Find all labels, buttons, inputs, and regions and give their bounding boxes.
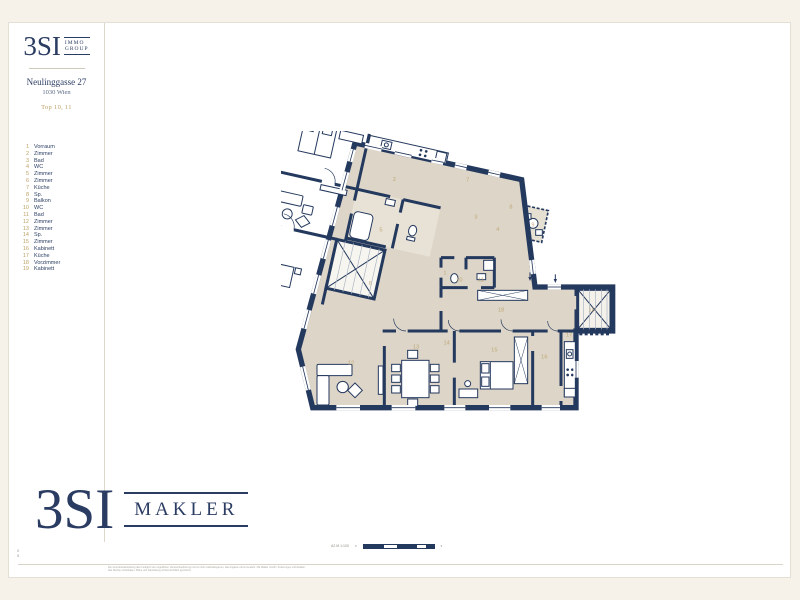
room-number: 2 — [393, 177, 396, 183]
room-number: 11 — [478, 278, 484, 284]
makler-logo: 3SI MAKLER — [35, 481, 248, 538]
unit-label: Top 10, 11 — [9, 104, 104, 111]
legend-item: 17Küche — [20, 253, 102, 260]
room-number: 19 — [589, 308, 595, 314]
makler-box: MAKLER — [124, 492, 248, 527]
legend-item: 7Küche — [20, 185, 102, 192]
stairwell — [326, 239, 385, 299]
room-number: 4 — [496, 227, 499, 233]
room-number: 17 — [566, 332, 572, 338]
logo-immo-group-badge: IMMO GROUP — [64, 37, 90, 55]
plan-sheet: 3SI IMMO GROUP Neulinggasse 27 1030 Wien… — [8, 22, 791, 578]
fold-mark-bottom: 5 — [17, 554, 19, 559]
scale-seg — [426, 545, 434, 548]
scale-end: 5 — [441, 544, 443, 548]
room-number: 1 — [443, 270, 446, 276]
room-number: 5 — [379, 228, 382, 234]
legend-item: 19Kabinett — [20, 266, 102, 273]
legend-item-label: WC — [34, 164, 43, 171]
legend-item: 14Sp. — [20, 232, 102, 239]
footer-3si-text: 3SI — [35, 481, 114, 538]
legend-item: 6Zimmer — [20, 178, 102, 185]
floor-plan: 12345678910111213141516171819 — [281, 131, 651, 441]
legend-item-label: Zimmer — [34, 226, 53, 233]
room-number: 18 — [498, 308, 504, 314]
legend-item-label: Vorraum — [34, 144, 55, 151]
room-number: 6 — [369, 281, 372, 287]
legend-item-number: 12 — [20, 219, 29, 226]
legend-item: 12Zimmer — [20, 219, 102, 226]
legend-item: 15Zimmer — [20, 239, 102, 246]
legend-item-number: 9 — [20, 198, 29, 205]
legend-item-label: Zimmer — [34, 171, 53, 178]
legend-item: 5Zimmer — [20, 171, 102, 178]
scale-seg — [384, 545, 397, 548]
legend-item: 9Balkon — [20, 198, 102, 205]
legend-item-number: 1 — [20, 144, 29, 151]
legend-item-number: 7 — [20, 185, 29, 192]
header-divider — [29, 68, 85, 69]
legend-item-label: Kabinett — [34, 246, 54, 253]
disclaimer-line2: Alle Rechte vorbehalten. Pläne und Darst… — [108, 569, 191, 572]
room-number: 10 — [456, 278, 462, 284]
legend-item-label: Bad — [34, 158, 44, 165]
property-address: Neulinggasse 27 — [9, 77, 104, 87]
legend-item-label: Vorzimmer — [34, 260, 60, 267]
legend-item: 18Vorzimmer — [20, 260, 102, 267]
legend-item-number: 18 — [20, 260, 29, 267]
legend-item: 13Zimmer — [20, 226, 102, 233]
room-legend: 1Vorraum2Zimmer3Bad4WC5Zimmer6Zimmer7Küc… — [20, 144, 102, 273]
legend-item-label: Zimmer — [34, 178, 53, 185]
footer-rule — [18, 564, 783, 565]
legend-item-number: 5 — [20, 171, 29, 178]
legend-item-number: 6 — [20, 178, 29, 185]
legend-item-number: 17 — [20, 253, 29, 260]
scale-seg — [364, 545, 384, 548]
logo-badge-line2: GROUP — [65, 46, 89, 52]
legend-item-number: 3 — [20, 158, 29, 165]
room-number: 9 — [531, 222, 534, 228]
room-number: 3 — [474, 214, 477, 220]
legend-item-label: Zimmer — [34, 239, 53, 246]
legend-item-number: 10 — [20, 205, 29, 212]
fold-marks: 0 5 — [17, 549, 19, 558]
legend-item-number: 11 — [20, 212, 29, 219]
room-number: 13 — [413, 344, 419, 350]
header: 3SI IMMO GROUP Neulinggasse 27 1030 Wien… — [9, 33, 104, 111]
legend-item-number: 15 — [20, 239, 29, 246]
scale-label: A2 M 1:100 — [331, 544, 349, 548]
legend-item-label: Bad — [34, 212, 44, 219]
column-divider — [104, 23, 105, 542]
legend-item-label: Küche — [34, 253, 50, 260]
room-number: 16 — [541, 354, 547, 360]
makler-text: MAKLER — [134, 499, 238, 520]
legend-item: 3Bad — [20, 158, 102, 165]
room-number: 12 — [348, 360, 354, 366]
scale-seg — [397, 545, 417, 548]
room-number: 8 — [509, 204, 512, 210]
legend-item-number: 8 — [20, 192, 29, 199]
legend-item-number: 13 — [20, 226, 29, 233]
legend-item-number: 4 — [20, 164, 29, 171]
corridor-cabinet — [478, 290, 528, 300]
legend-item: 10WC — [20, 205, 102, 212]
legend-item-number: 14 — [20, 232, 29, 239]
scale-seg — [417, 545, 426, 548]
legend-item-label: Sp. — [34, 232, 42, 239]
logo-badge-line1: IMMO — [65, 40, 85, 46]
scale-bar-graphic — [363, 544, 435, 549]
legend-item: 2Zimmer — [20, 151, 102, 158]
scale-start: 0 — [355, 544, 357, 548]
legend-item-label: Kabinett — [34, 266, 54, 273]
legend-item-number: 2 — [20, 151, 29, 158]
scale-bar: A2 M 1:100 0 5 — [331, 544, 442, 549]
legend-item: 16Kabinett — [20, 246, 102, 253]
legend-item-label: WC — [34, 205, 43, 212]
legend-item-number: 19 — [20, 266, 29, 273]
legend-item-label: Sp. — [34, 192, 42, 199]
room-number: 15 — [491, 348, 497, 354]
legend-item-label: Zimmer — [34, 151, 53, 158]
room-number: 14 — [444, 340, 450, 346]
legend-item-label: Zimmer — [34, 219, 53, 226]
immo-group-logo: 3SI IMMO GROUP — [9, 33, 104, 59]
legend-item-label: Küche — [34, 185, 50, 192]
property-city: 1030 Wien — [9, 89, 104, 96]
room-number: 7 — [466, 178, 469, 184]
legend-item: 4WC — [20, 164, 102, 171]
legend-item-number: 16 — [20, 246, 29, 253]
logo-3si-text: 3SI — [23, 33, 61, 59]
legend-item: 11Bad — [20, 212, 102, 219]
legend-item: 1Vorraum — [20, 144, 102, 151]
disclaimer: Die Grundrissdarstellung dient lediglich… — [108, 566, 398, 572]
legend-item: 8Sp. — [20, 192, 102, 199]
legend-item-label: Balkon — [34, 198, 51, 205]
